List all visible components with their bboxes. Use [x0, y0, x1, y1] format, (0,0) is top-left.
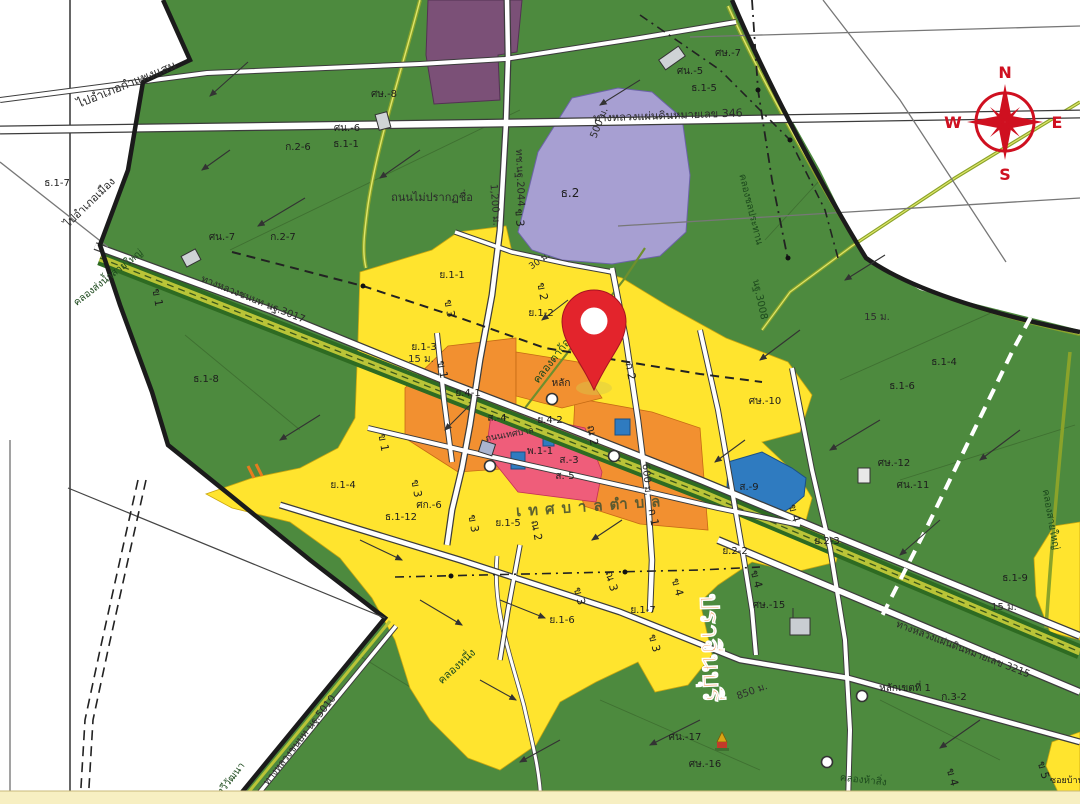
- map-label: ศน.-11: [897, 480, 930, 491]
- map-label: หลัก: [552, 378, 571, 389]
- map-label: พ.1-1: [527, 446, 553, 457]
- map-label: ธ.1-9: [1002, 573, 1028, 584]
- map-label: ส.-3: [559, 455, 578, 466]
- compass-south-label: S: [999, 165, 1011, 184]
- scan-edge-strip: [0, 791, 1080, 804]
- map-label: ธ.1-1: [333, 139, 359, 150]
- map-label: ปราจีนบุรี: [692, 593, 727, 703]
- map-label: ทช.นฐ.2044: [513, 149, 526, 207]
- map-label: ก.3-2: [941, 692, 967, 703]
- map-label: ศษ.-15: [753, 600, 785, 611]
- map-label: ศน.-6: [334, 123, 360, 134]
- map-label: ศษ.-7: [715, 48, 741, 59]
- map-label: 15 ม.: [991, 602, 1017, 613]
- map-canvas[interactable]: ไปอำเภอกำแพงแสนไปอำเภอเมืองทางหลวงแผ่นดิ…: [0, 0, 1080, 804]
- map-label: ก.2-6: [285, 142, 311, 153]
- map-label: ย.1-1: [439, 270, 464, 281]
- map-label: 15 ม.: [408, 354, 434, 365]
- map-label: ซอยบ้านใหม่: [1050, 775, 1080, 786]
- compass-north-label: N: [998, 63, 1011, 82]
- map-label: ย.1-3: [411, 342, 436, 353]
- map-label: ศษ.-12: [878, 458, 910, 469]
- map-label: ข 3: [512, 208, 527, 227]
- map-label: ศน.-7: [209, 232, 235, 243]
- map-label: ย.4-2: [537, 415, 562, 426]
- map-label: ศน.-17: [669, 732, 702, 743]
- map-label: ย.1-6: [549, 615, 574, 626]
- map-label: ศษ.-10: [749, 396, 781, 407]
- map-label: ธ.1-5: [691, 83, 717, 94]
- school-icon: [790, 618, 810, 635]
- map-label: ย.1-7: [630, 605, 655, 616]
- map-label: ธ.1-6: [889, 381, 915, 392]
- map-label: ศษ.-16: [689, 759, 721, 770]
- map-label: ก.2-7: [270, 232, 296, 243]
- map-label: ถนนไม่ปรากฏชื่อ: [391, 189, 473, 204]
- pin-hole: [581, 308, 608, 335]
- map-label: ย.2-2: [722, 546, 747, 557]
- map-label: ธ.1-12: [385, 512, 417, 523]
- building-icon: [858, 468, 870, 483]
- map-label: ย.1-4: [330, 480, 355, 491]
- map-label: ย.4-1: [455, 388, 480, 399]
- compass-west-label: W: [944, 113, 962, 132]
- map-label: ธ.1-7: [44, 178, 70, 189]
- map-label: ส.-4: [487, 413, 506, 424]
- map-label: 15 ม.: [864, 312, 890, 323]
- map-label: ส.-5: [555, 471, 574, 482]
- map-label: ธ.2: [561, 186, 580, 200]
- zone-institution-blue-3: [615, 419, 630, 435]
- compass-east-label: E: [1052, 113, 1063, 132]
- map-label: ย.2-3: [814, 536, 839, 547]
- map-label: ย.1-2: [528, 308, 553, 319]
- map-label: ธ.1-4: [931, 357, 957, 368]
- map-screenshot: ไปอำเภอกำแพงแสนไปอำเภอเมืองทางหลวงแผ่นดิ…: [0, 0, 1080, 804]
- map-label: ธ.1-8: [193, 374, 219, 385]
- map-label: ศษ.-8: [371, 89, 397, 100]
- map-label: ส.-9: [739, 482, 758, 493]
- map-label: ศน.-5: [677, 66, 703, 77]
- map-label: หลักเขตที่ 1: [879, 680, 931, 694]
- map-label: ศก.-6: [416, 500, 442, 511]
